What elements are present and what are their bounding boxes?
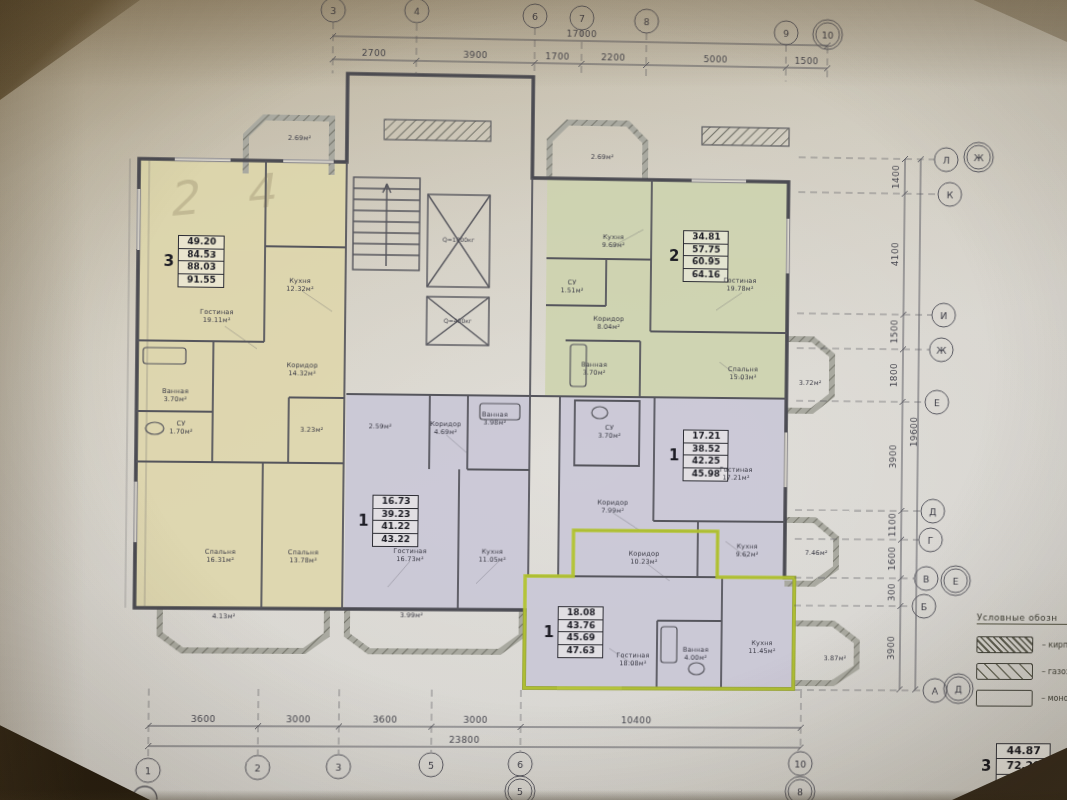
- room-label: Гостиная19.11м²: [200, 307, 234, 324]
- dimension-label: 10400: [621, 715, 652, 725]
- room-label: Кухня12.32м²: [286, 276, 314, 293]
- room-label: 3.23м²: [300, 425, 323, 434]
- grid-axis-bubble: 8: [788, 779, 813, 800]
- dimension-label: 3000: [463, 715, 488, 725]
- dimension-label: 17000: [566, 29, 597, 40]
- dimension-label: 1800: [889, 363, 899, 387]
- dimension-label: 3900: [888, 444, 898, 468]
- balcony-area-label: 3.87м²: [823, 654, 846, 662]
- dimension-label: 5000: [703, 54, 727, 64]
- room-label: СУ1.70м²: [169, 419, 193, 436]
- stairs: [353, 177, 420, 270]
- grid-axis-bubble: Г: [918, 527, 943, 552]
- grid-axis-bubble: Б: [912, 594, 937, 619]
- apartment-number: 3: [981, 757, 991, 775]
- grid-axis-bubble: 9: [774, 20, 799, 45]
- room-label: Ванная3.70м²: [162, 387, 189, 404]
- dimension-label: 19600: [909, 417, 919, 447]
- grid-axis-bubble: Ж: [966, 145, 991, 170]
- room-label: Гостиная19.78м²: [724, 276, 757, 293]
- plan-linework: [0, 0, 1064, 800]
- apartment-number: 1: [669, 446, 680, 464]
- dimension-label: 1400: [891, 164, 901, 188]
- dimension-label: 3600: [191, 714, 216, 724]
- room-label: Ванная3.98м²: [482, 410, 508, 427]
- dimension-label: 4100: [890, 242, 900, 266]
- apartment-summary: 3 49.2084.5388.0391.55: [163, 235, 225, 288]
- balcony-area-label: 3.99м²: [400, 611, 423, 620]
- grid-axis-bubble: А: [922, 678, 947, 703]
- room-label: Коридор8.04м²: [593, 314, 624, 331]
- dimension-label: 2200: [601, 52, 626, 62]
- brick-hatch-swatch: [976, 636, 1033, 653]
- grid-axis-bubble: 10: [815, 22, 840, 47]
- floor-plan-sheet: 3 4 6 7 8 9 10 17000 2700 3900 1700 2200…: [0, 0, 1064, 800]
- grid-axis-bubble: 10: [788, 751, 813, 776]
- dimension-label: 300: [887, 583, 897, 601]
- apartment-number: 1: [358, 512, 369, 530]
- grid-axis-bubble: 3: [326, 754, 351, 779]
- apartment-number: 3: [163, 252, 174, 270]
- balcony-area-label: 3.72м²: [799, 379, 822, 388]
- grid-axis-bubble: В: [914, 566, 939, 591]
- elevator-capacity-label: Q=400кг: [444, 316, 472, 323]
- pencil-mark: 2 4: [165, 162, 292, 227]
- dimension-label: 23800: [449, 735, 480, 745]
- room-label: Спальня13.78м²: [288, 548, 319, 565]
- grid-axis-bubble: 8: [634, 8, 659, 33]
- room-label: Коридор7.99м²: [597, 498, 628, 515]
- room-label: Спальня16.31м²: [205, 547, 236, 564]
- grid-axis-bubble: 5: [418, 752, 443, 777]
- apartment-summary: 1 18.0843.7645.6947.63: [543, 606, 604, 658]
- dimension-label: 3600: [373, 715, 398, 725]
- dimension-label: 2700: [362, 48, 387, 58]
- room-label: Ванная4.00м²: [683, 645, 709, 662]
- room-label: Коридор14.32м²: [287, 361, 318, 378]
- balcony-area-label: 2.69м²: [288, 134, 312, 143]
- room-label: Кухня11.45м²: [748, 639, 775, 656]
- grid-axis-bubble: 1: [135, 758, 161, 783]
- apartment-summary: 1 16.7339.2341.2243.22: [358, 495, 419, 547]
- apartment-number: 1: [543, 623, 554, 641]
- aerated-concrete-swatch: [976, 663, 1033, 680]
- grid-axis-bubble: 5: [507, 778, 532, 800]
- grid-axis-bubble: Д: [946, 676, 971, 701]
- grid-axis-bubble: 6: [522, 3, 547, 28]
- grid-axis-bubble: 6: [508, 751, 533, 776]
- balcony-area-label: 4.13м²: [212, 612, 236, 621]
- floor-plan-photo: 3 4 6 7 8 9 10 17000 2700 3900 1700 2200…: [0, 0, 1067, 800]
- grid-axis-bubble: Е: [943, 568, 968, 593]
- room-label: Кухня9.69м²: [602, 233, 625, 250]
- dimension-label: 1500: [794, 56, 818, 66]
- elevator-capacity-label: Q=1000кг: [443, 235, 475, 242]
- apartment-number: 2: [669, 247, 680, 265]
- balcony-area-label: 7.46м²: [805, 549, 828, 558]
- grid-axis-bubble: Ж: [929, 337, 954, 362]
- dimension-label: 1500: [889, 319, 899, 343]
- dimension-label: 3900: [886, 636, 896, 660]
- room-label: 2.59м²: [369, 422, 392, 431]
- monolith-swatch: [976, 690, 1033, 707]
- legend-title: Условные обозн: [977, 612, 1067, 624]
- grid-axis-bubble: 2: [245, 755, 271, 780]
- grid-axis-bubble: И: [931, 303, 956, 328]
- grid-axis-bubble: К: [937, 182, 962, 207]
- room-label: Гостиная18.08м²: [616, 651, 649, 668]
- dimension-label: 1600: [887, 546, 897, 570]
- room-label: Спальня15.03м²: [728, 365, 758, 382]
- grid-axis-bubble: Л: [934, 147, 959, 172]
- room-label: Кухня9.62м²: [736, 542, 759, 559]
- grid-axis-bubble: Д: [920, 499, 945, 524]
- room-label: Коридор10.23м²: [629, 549, 660, 566]
- room-label: Коридор4.69м²: [430, 420, 461, 437]
- apartment-summary: 2 34.8157.7560.9564.16: [669, 230, 729, 282]
- room-label: СУ3.70м²: [598, 423, 621, 440]
- room-label: СУ1.51м²: [560, 278, 583, 295]
- room-label: Кухня11.05м²: [478, 547, 506, 564]
- dimension-label: 3000: [286, 714, 311, 724]
- balcony-area-label: 2.69м²: [591, 153, 614, 162]
- legend: Условные обозн – кирп – газоз – монол: [976, 612, 1067, 716]
- room-label: Ванная3.70м²: [581, 360, 607, 377]
- room-label: Гостиная17.21м²: [720, 465, 753, 482]
- grid-axis-bubble: Е: [924, 390, 949, 415]
- grid-axis-bubble: 7: [569, 5, 594, 30]
- room-label: Гостиная16.73м²: [393, 547, 427, 564]
- dimension-label: 1700: [545, 51, 570, 61]
- dimension-label: 3900: [463, 50, 488, 60]
- dimension-label: 1100: [887, 513, 897, 537]
- floor-summary-table: 3 44.8772.2973.95: [981, 743, 1051, 790]
